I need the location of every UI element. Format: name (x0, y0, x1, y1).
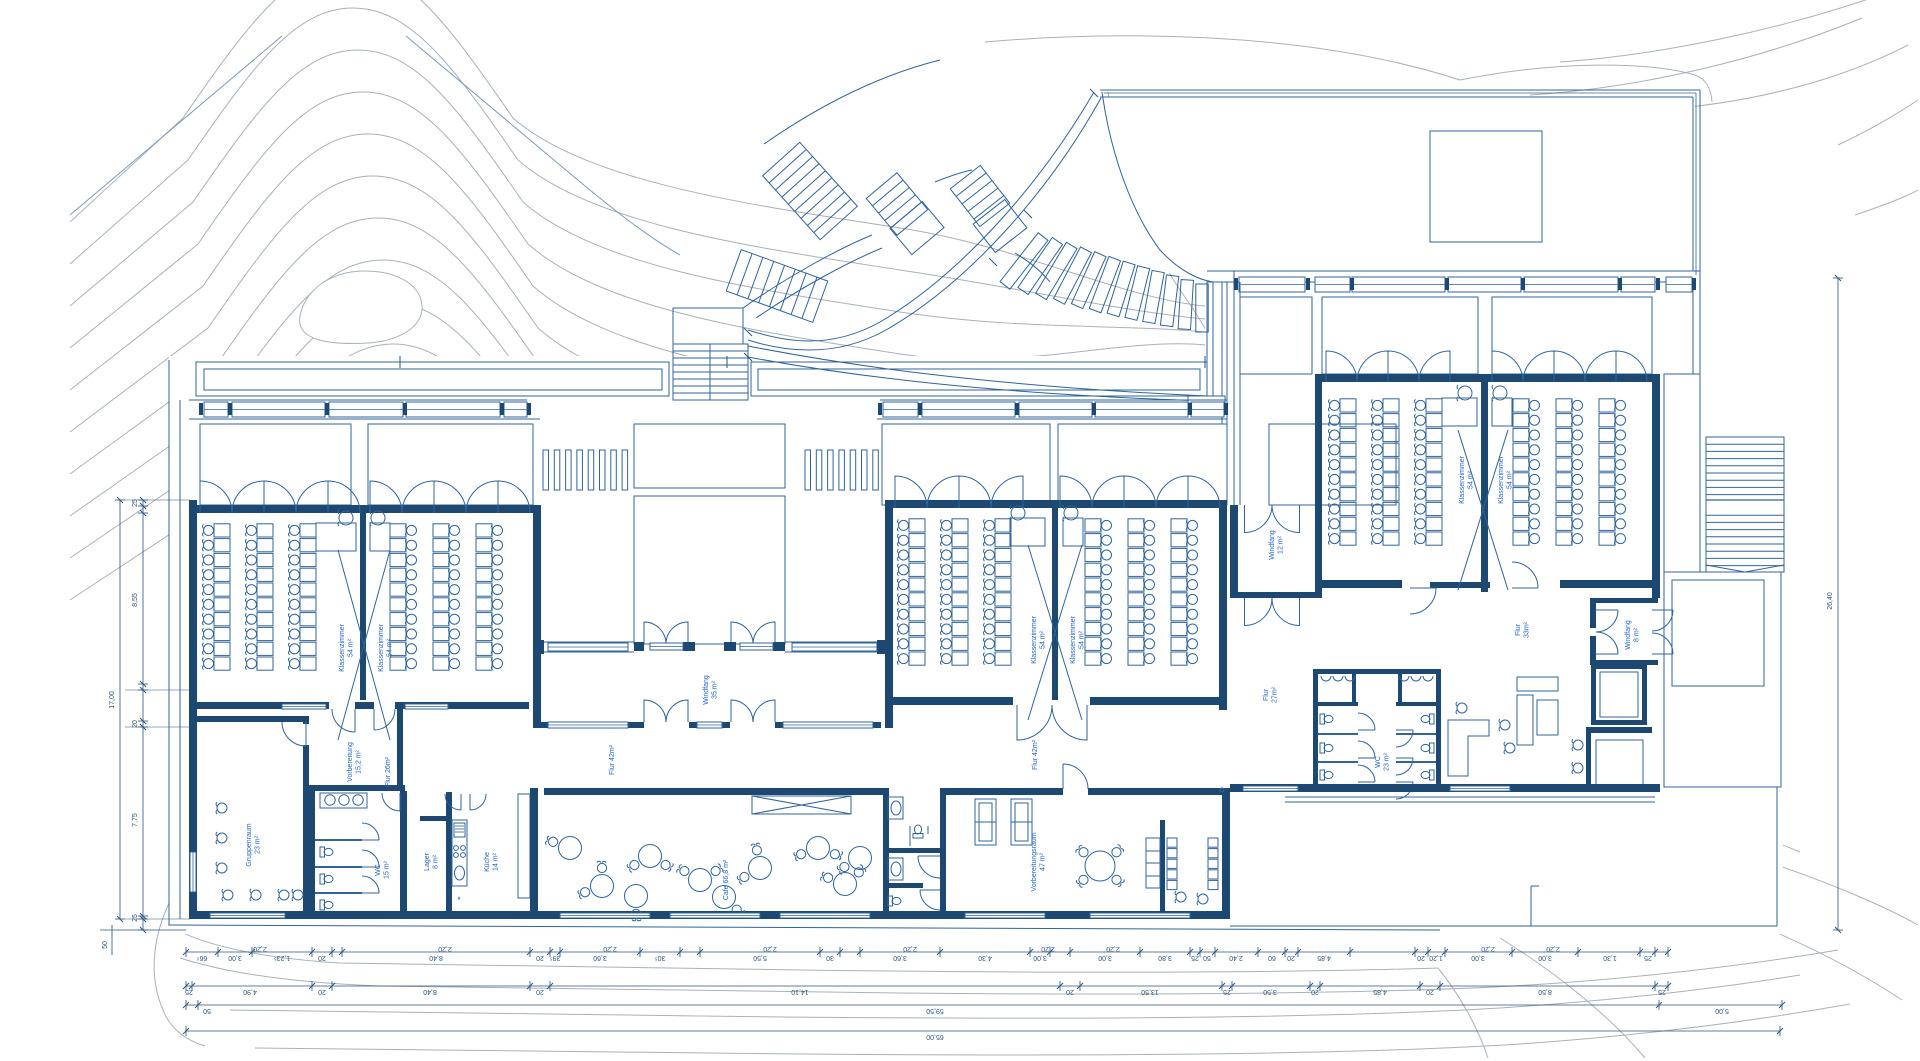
svg-text:54 m²: 54 m² (348, 638, 355, 657)
svg-text:13,50: 13,50 (1141, 988, 1159, 995)
svg-text:Klassenzimmer: Klassenzimmer (1498, 455, 1505, 504)
svg-text:3,00: 3,00 (228, 954, 242, 961)
svg-text:20: 20 (1417, 954, 1425, 961)
svg-text:2,20: 2,20 (763, 945, 777, 952)
svg-text:25: 25 (1658, 988, 1666, 995)
svg-text:30: 30 (826, 954, 834, 961)
svg-text:35 m²: 35 m² (712, 680, 719, 699)
svg-text:2,20: 2,20 (438, 945, 452, 952)
svg-text:2,20: 2,20 (1041, 945, 1055, 952)
svg-text:Windfang: Windfang (1269, 530, 1276, 560)
svg-text:20: 20 (318, 988, 326, 995)
svg-text:8,40: 8,40 (429, 954, 443, 961)
svg-text:3,00: 3,00 (1033, 954, 1047, 961)
svg-text:Klassenzimmer: Klassenzimmer (1459, 455, 1466, 504)
svg-text:20: 20 (1287, 954, 1295, 961)
svg-text:4,30: 4,30 (978, 954, 992, 961)
svg-text:23 m²: 23 m² (1384, 752, 1391, 771)
svg-text:2,20: 2,20 (253, 945, 267, 952)
svg-text:Cafe 66,8 m²: Cafe 66,8 m² (723, 859, 730, 900)
svg-text:8 m²: 8 m² (433, 854, 440, 869)
svg-text:3,00: 3,00 (1471, 954, 1485, 961)
svg-text:Flur: Flur (1515, 623, 1522, 636)
svg-text:3,00: 3,00 (1098, 954, 1112, 961)
svg-text:23 m²: 23 m² (255, 835, 262, 854)
svg-text:27m²: 27m² (1272, 686, 1279, 703)
svg-text:25: 25 (1644, 954, 1652, 961)
svg-text:33m²: 33m² (1524, 621, 1531, 638)
svg-text:50: 50 (102, 941, 109, 949)
svg-text:1,23⁵: 1,23⁵ (274, 954, 291, 961)
svg-text:Klassenzimmer: Klassenzimmer (339, 623, 346, 672)
svg-text:54 m²: 54 m² (1040, 630, 1047, 649)
svg-text:66⁵: 66⁵ (197, 954, 208, 961)
svg-text:50: 50 (1203, 954, 1211, 961)
svg-text:2,20: 2,20 (603, 945, 617, 952)
svg-text:4,85: 4,85 (1373, 988, 1387, 995)
svg-text:30⁵: 30⁵ (655, 954, 666, 961)
svg-text:2,20: 2,20 (1106, 945, 1120, 952)
svg-text:15,2 m²: 15,2 m² (356, 749, 363, 773)
svg-text:Klassenzimmer: Klassenzimmer (1070, 615, 1077, 664)
svg-text:Flur 26m²: Flur 26m² (385, 756, 392, 787)
svg-text:Vorbereitungsraum: Vorbereitungsraum (1031, 832, 1038, 891)
svg-text:54 m²: 54 m² (1079, 630, 1086, 649)
svg-text:1,20: 1,20 (1429, 954, 1443, 961)
svg-text:39⁵: 39⁵ (550, 954, 561, 961)
svg-text:5,50: 5,50 (753, 954, 767, 961)
svg-text:4,90: 4,90 (243, 988, 257, 995)
svg-text:2,20: 2,20 (1481, 945, 1495, 952)
svg-text:60: 60 (1268, 954, 1276, 961)
svg-text:3,60: 3,60 (593, 954, 607, 961)
svg-text:8,40: 8,40 (423, 988, 437, 995)
svg-text:4,85: 4,85 (1317, 954, 1331, 961)
svg-text:25: 25 (132, 914, 139, 922)
svg-text:54 m²: 54 m² (387, 638, 394, 657)
svg-text:1,30: 1,30 (1603, 954, 1617, 961)
svg-text:59,50: 59,50 (926, 1007, 944, 1014)
svg-text:WC: WC (1375, 756, 1382, 768)
svg-text:47 m²: 47 m² (1040, 852, 1047, 871)
svg-text:Klassenzimmer: Klassenzimmer (1031, 615, 1038, 664)
svg-text:Windfang: Windfang (1625, 620, 1632, 650)
svg-text:Gruppenraum: Gruppenraum (246, 823, 253, 866)
svg-text:15 m²: 15 m² (384, 860, 391, 879)
svg-text:20: 20 (1311, 988, 1319, 995)
svg-text:14,10: 14,10 (791, 988, 809, 995)
svg-text:Flur 42m²: Flur 42m² (609, 744, 616, 775)
svg-text:8,55: 8,55 (132, 593, 139, 607)
svg-text:20: 20 (1066, 988, 1074, 995)
svg-text:Vorbereitung: Vorbereitung (347, 742, 354, 782)
svg-text:20: 20 (318, 954, 326, 961)
svg-text:54 m²: 54 m² (1507, 470, 1514, 489)
svg-text:25: 25 (1191, 954, 1199, 961)
svg-text:2,20: 2,20 (903, 945, 917, 952)
svg-text:7,75: 7,75 (132, 813, 139, 827)
svg-text:20: 20 (536, 954, 544, 961)
svg-text:WC: WC (375, 864, 382, 876)
svg-text:50: 50 (203, 1007, 211, 1014)
svg-text:*: * (457, 895, 461, 905)
svg-text:2,40: 2,40 (1229, 954, 1243, 961)
svg-text:20: 20 (536, 988, 544, 995)
svg-text:25: 25 (1223, 988, 1231, 995)
svg-text:3,50: 3,50 (1263, 988, 1277, 995)
svg-text:3,00: 3,00 (1538, 954, 1552, 961)
svg-text:2,20: 2,20 (1546, 945, 1560, 952)
svg-text:20: 20 (1426, 988, 1434, 995)
svg-text:Küche: Küche (484, 852, 491, 872)
svg-text:Windfang: Windfang (703, 675, 710, 705)
svg-text:12 m²: 12 m² (1278, 535, 1285, 554)
svg-text:5,00: 5,00 (1715, 1007, 1729, 1014)
svg-text:Klassenzimmer: Klassenzimmer (378, 623, 385, 672)
svg-text:65,00: 65,00 (926, 1033, 944, 1040)
svg-text:8 m²: 8 m² (1634, 627, 1641, 642)
svg-text:8,50: 8,50 (1538, 988, 1552, 995)
svg-text:14 m²: 14 m² (493, 852, 500, 871)
svg-text:3,60: 3,60 (893, 954, 907, 961)
svg-text:Flur 42m²: Flur 42m² (1032, 739, 1039, 770)
svg-text:3,80: 3,80 (1158, 954, 1172, 961)
svg-text:25: 25 (185, 988, 193, 995)
svg-text:26,40: 26,40 (1827, 592, 1834, 610)
svg-text:Lager: Lager (424, 852, 431, 871)
svg-text:Flur: Flur (1263, 688, 1270, 701)
svg-text:17,00: 17,00 (109, 691, 116, 709)
